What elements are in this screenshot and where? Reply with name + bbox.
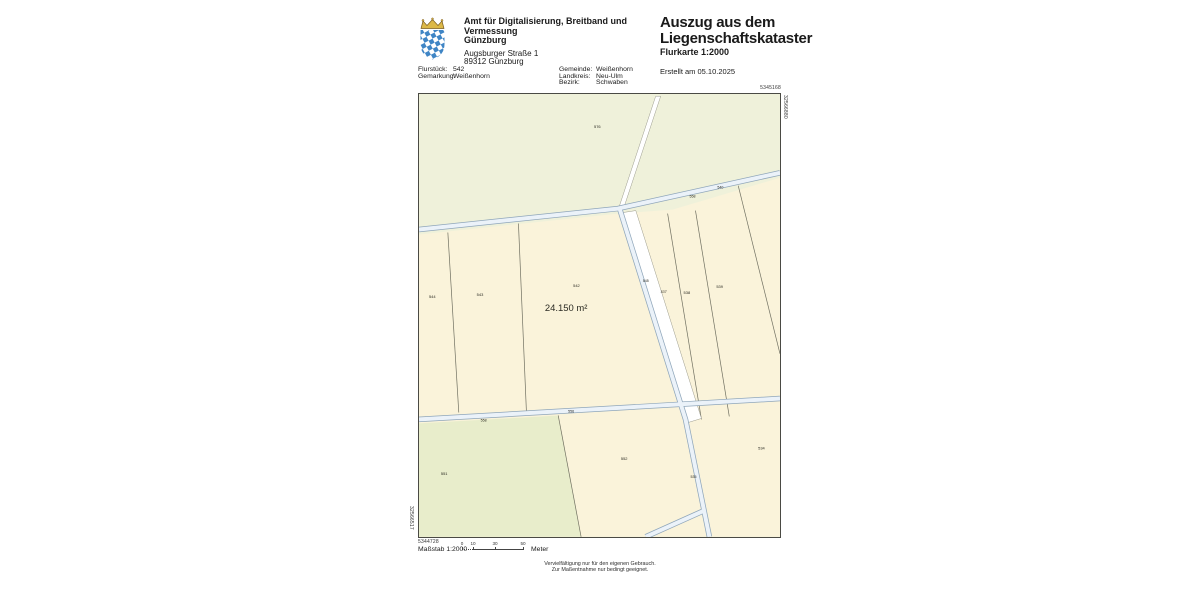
parcel-info-left: Flurstück: 542 Gemarkung: Weißenhorn — [418, 67, 548, 80]
reproduction-notice: Vervielfältigung nur für den eigenen Geb… — [400, 561, 800, 573]
parcel-label: 543 — [477, 292, 484, 297]
info-label: Bezirk: — [559, 80, 596, 87]
bavaria-shield-icon — [417, 17, 448, 61]
parcel-label: 539 — [716, 284, 723, 289]
scale-tick — [473, 547, 474, 550]
scale-bar-dotted-segment — [462, 549, 473, 550]
scale-bar: 0103050 — [462, 542, 532, 552]
parcel-label: 538 — [684, 290, 691, 295]
scale-unit: Meter — [531, 546, 548, 553]
info-value: Weißenhorn — [453, 74, 490, 81]
agency-block: Amt für Digitalisierung, Breitband und V… — [464, 17, 654, 67]
scale-tick-label: 50 — [520, 541, 525, 546]
scale-bar-line — [473, 549, 523, 550]
bavaria-coat-of-arms-logo — [417, 17, 448, 61]
cadastral-map: 57654454354224.150 m²5405585455375385395… — [418, 93, 781, 538]
parcel-label: 544 — [429, 294, 436, 299]
agency-name-line1: Amt für Digitalisierung, Breitband und V… — [464, 17, 654, 36]
info-row-bezirk: Bezirk: Schwaben — [559, 80, 689, 87]
info-value: Schwaben — [596, 80, 628, 87]
parcel-label: 558 — [481, 418, 487, 422]
scale-tick-label: 30 — [492, 541, 497, 546]
document-title-line2: Liegenschaftskataster — [660, 31, 792, 47]
scale-tick — [462, 547, 463, 550]
parcel-label: 558 — [690, 195, 696, 199]
parcel-label: 540 — [717, 186, 723, 190]
map-coordinate-right-edge: 32566880 — [782, 95, 788, 119]
info-row-gemarkung: Gemarkung: Weißenhorn — [418, 74, 548, 81]
parcel-label: 534 — [758, 445, 765, 450]
parcel-label: 542 — [573, 283, 580, 288]
parcel-label: 576 — [594, 124, 601, 129]
parcel-label: 535 — [690, 475, 696, 479]
map-coordinate-bottom-left: 5344728 — [418, 539, 439, 545]
map-coordinate-top-right: 5345168 — [741, 85, 781, 91]
parcel-info-right: Gemeinde: Weißenhorn Landkreis: Neu-Ulm … — [559, 67, 689, 87]
agency-name-line2: Günzburg — [464, 36, 654, 46]
document-subtitle: Flurkarte 1:2000 — [660, 47, 792, 57]
parcel-label: 556 — [568, 409, 574, 413]
cadastral-map-svg: 57654454354224.150 m²5405585455375385395… — [419, 94, 780, 537]
scale-tick-label: 0 — [461, 541, 464, 546]
notice-line2: Zur Maßentnahme nur bedingt geeignet. — [400, 567, 800, 573]
document-title-line1: Auszug aus dem — [660, 15, 792, 31]
parcel-label: 545 — [643, 279, 649, 283]
parcel-label: 537 — [661, 290, 668, 294]
map-coordinate-left-edge: 32566517 — [408, 506, 414, 530]
scale-tick — [495, 547, 496, 550]
scale-tick — [523, 547, 524, 550]
scale-tick-label: 10 — [470, 541, 475, 546]
info-label: Gemarkung: — [418, 74, 453, 81]
parcel-label: 551 — [441, 471, 448, 476]
parcel-label: 552 — [621, 456, 628, 461]
area-label: 24.150 m² — [545, 303, 588, 314]
scale-label: Maßstab 1:2000 — [418, 546, 467, 553]
